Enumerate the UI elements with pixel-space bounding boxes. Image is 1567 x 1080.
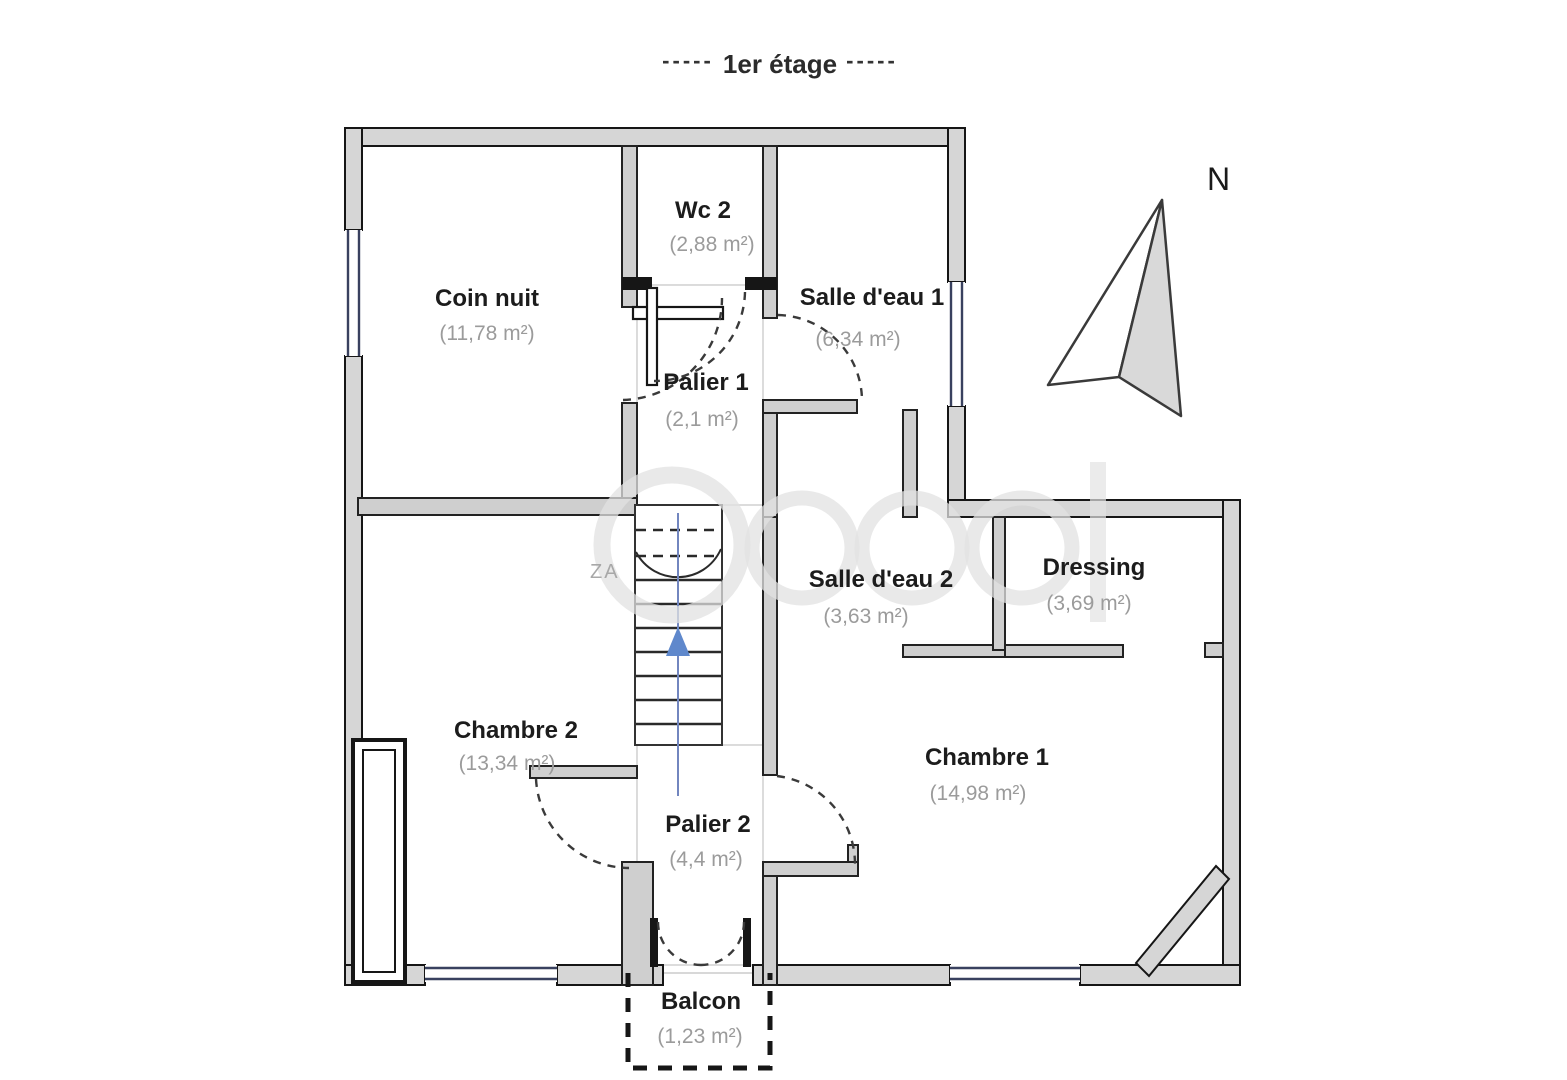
room-area-coin-nuit: (11,78 m²) [439, 322, 534, 345]
room-label-palier-2: Palier 2 [665, 811, 750, 838]
wall-bottom-c [753, 965, 950, 985]
balcon-door-arc-left [658, 922, 701, 965]
room-label-balcon: Balcon [661, 988, 741, 1015]
wc2-door-jamb-right [745, 277, 777, 290]
watermark-subtext: ZA [590, 561, 620, 583]
room-label-chambre-1: Chambre 1 [925, 744, 1049, 771]
wall-corner-diagonal [1136, 866, 1229, 976]
wall-salle-eau1-bottom [763, 400, 857, 413]
title-dash-right: ----- [846, 48, 898, 73]
room-label-dressing: Dressing [1043, 554, 1146, 581]
wall-dressing-bottom [1005, 645, 1123, 657]
wall-salle-eau2-bottom [903, 645, 1005, 657]
staircase [635, 505, 722, 796]
wc2-door-arc [654, 292, 745, 381]
wall-palier2-left-pillar [622, 862, 653, 985]
wall-corridor-right-lower [763, 517, 777, 775]
room-area-salle-eau-2: (3,63 m²) [823, 605, 908, 628]
room-label-salle-eau-1: Salle d'eau 1 [800, 284, 944, 311]
room-label-chambre-2: Chambre 2 [454, 717, 578, 744]
room-label-coin-nuit: Coin nuit [435, 285, 539, 312]
room-area-palier-2: (4,4 m²) [669, 848, 743, 871]
wall-palier2-right-pillar [763, 876, 777, 985]
closet-outer [353, 740, 405, 982]
chambre2-door-arc [536, 779, 629, 868]
chambre1-door-arc [777, 776, 855, 864]
wall-left-upper [345, 128, 362, 230]
wall-bottom-d [1080, 965, 1240, 985]
wall-dressing-door-jamb [1205, 643, 1223, 657]
balcon-door-arc-right [701, 922, 744, 965]
room-area-salle-eau-1: (6,34 m²) [815, 328, 900, 351]
room-area-chambre-1: (14,98 m²) [930, 782, 1027, 805]
room-area-balcon: (1,23 m²) [657, 1025, 742, 1048]
room-labels: Coin nuit (11,78 m²) Wc 2 (2,88 m²) Sall… [435, 197, 1145, 1048]
room-area-palier-1: (2,1 m²) [665, 408, 739, 431]
wall-right-upper [948, 128, 965, 282]
wall-top [345, 128, 965, 146]
plan-title: ----- 1er étage ----- [662, 48, 898, 79]
room-area-chambre-2: (13,34 m²) [459, 752, 556, 775]
room-label-palier-1: Palier 1 [663, 369, 748, 396]
page-title: 1er étage [723, 49, 837, 79]
coin-nuit-door-leaf [647, 288, 657, 385]
north-compass: N [1048, 161, 1230, 416]
room-area-wc-2: (2,88 m²) [669, 233, 754, 256]
room-label-salle-eau-2: Salle d'eau 2 [809, 566, 953, 593]
chambre2-closet [353, 740, 405, 982]
room-area-dressing: (3,69 m²) [1046, 592, 1131, 615]
wall-chambre1-door-stub [763, 862, 858, 876]
wall-corridor-right-upper [763, 146, 777, 318]
balcon-door-jamb-left [650, 918, 658, 967]
wall-coinnuit-chambre2 [358, 498, 637, 515]
north-label: N [1207, 161, 1230, 197]
title-dash-left: ----- [662, 48, 714, 73]
room-label-wc-2: Wc 2 [675, 197, 731, 224]
floor-plan-canvas: ZA N ----- 1er étage ----- Coin nuit (11… [0, 0, 1567, 1080]
wall-right-outer [1223, 500, 1240, 985]
